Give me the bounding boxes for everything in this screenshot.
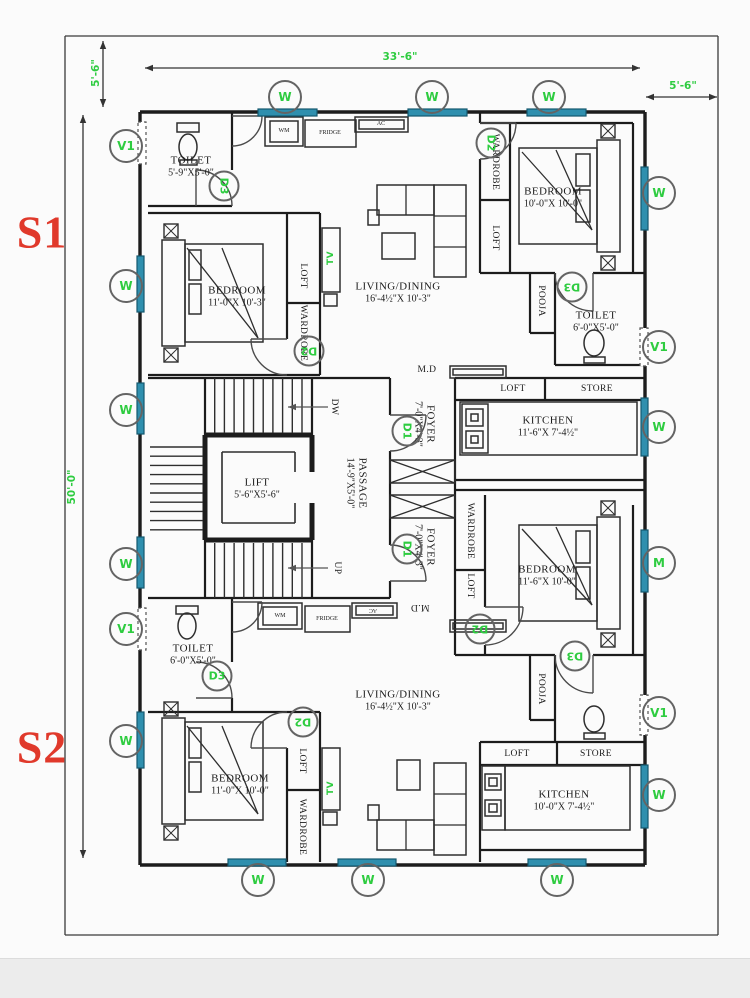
door-marker-d2: D2 <box>465 614 496 645</box>
marker-text: W <box>119 403 132 417</box>
marker-text: W <box>251 873 264 887</box>
label-pooja: POOJA <box>536 673 546 705</box>
marker-text: W <box>119 279 132 293</box>
marker-text: D3 <box>567 650 584 663</box>
room-label-toilet: TOILET5'-9"X5'-0" <box>168 154 214 179</box>
window-marker-w: W <box>540 863 574 897</box>
label-m-d: M.D <box>411 602 430 612</box>
door-marker-d2: D2 <box>476 128 507 159</box>
window-marker-v1: V1 <box>109 612 143 646</box>
window-marker-v1: V1 <box>642 330 676 364</box>
door-marker-d3: D3 <box>202 661 233 692</box>
label-dw: DW <box>329 399 339 416</box>
label-loft: LOFT <box>500 384 525 394</box>
footer-strip <box>0 958 750 998</box>
door-marker-d1: D1 <box>392 416 423 447</box>
label-fridge: FRIDGE <box>319 130 341 136</box>
door-marker-d3: D3 <box>209 171 240 202</box>
dimension-top-right: 5'-6" <box>669 80 697 92</box>
unit-label-s1: S1 <box>17 206 68 259</box>
label-wardrobe: WARDROBE <box>297 799 307 856</box>
window-marker-w: W <box>109 269 143 303</box>
window-marker-w: W <box>351 863 385 897</box>
room-label-kitchen: KITCHEN10'-0"X 7'-4½" <box>534 788 595 813</box>
room-label-bedroom: BEDROOM10'-0"X 10'-0" <box>524 185 582 210</box>
marker-text: D2 <box>484 135 497 152</box>
window-marker-m: M <box>642 546 676 580</box>
window-marker-w: W <box>241 863 275 897</box>
label-ac: AC <box>369 607 377 613</box>
label-pooja: POOJA <box>536 285 546 317</box>
label-store: STORE <box>581 384 613 394</box>
window-marker-w: W <box>642 778 676 812</box>
room-label-lift: LIFT5'-6"X5'-6" <box>234 476 280 501</box>
marker-text: W <box>119 734 132 748</box>
marker-text: V1 <box>650 340 668 354</box>
room-label-kitchen: KITCHEN11'-6"X 7'-4½" <box>518 414 578 439</box>
door-marker-d3: D3 <box>560 641 591 672</box>
marker-text: W <box>542 90 555 104</box>
label-ac: AC <box>377 121 385 127</box>
marker-text: D1 <box>400 423 413 440</box>
marker-text: D3 <box>209 670 226 683</box>
window-marker-w: W <box>109 724 143 758</box>
marker-text: W <box>119 557 132 571</box>
window-marker-w: W <box>642 410 676 444</box>
door-marker-d3: D3 <box>557 272 588 303</box>
dimension-top: 33'-6" <box>383 51 418 63</box>
room-label-toilet: TOILET6'-0"X5'-0" <box>573 309 619 334</box>
marker-text: D2 <box>472 623 489 636</box>
window-marker-w: W <box>532 80 566 114</box>
label-store: STORE <box>580 749 612 759</box>
marker-text: W <box>652 420 665 434</box>
window-marker-w: W <box>642 176 676 210</box>
unit-label-s2: S2 <box>17 721 68 774</box>
marker-text: W <box>361 873 374 887</box>
floor-plan-sheet: S1 S2 33'-6" 5'-6" 5'-6" 50'-0" TOILET5'… <box>0 0 750 998</box>
marker-text: V1 <box>117 622 135 636</box>
window-marker-w: W <box>268 80 302 114</box>
label-loft: LOFT <box>490 225 500 250</box>
marker-text: D3 <box>564 281 581 294</box>
dimension-left: 50'-0" <box>66 470 78 505</box>
room-label-living-dining: LIVING/DINING16'-4½"X 10'-3" <box>355 280 440 305</box>
room-label-bedroom: BEDROOM11'-0"X 10'-0" <box>211 772 269 797</box>
marker-text: D2 <box>295 716 312 729</box>
label-wm: WM <box>275 613 286 619</box>
window-marker-w: W <box>109 547 143 581</box>
label-wm: WM <box>279 128 290 134</box>
marker-text: W <box>652 186 665 200</box>
marker-text: D2 <box>301 345 318 358</box>
window-marker-w: W <box>415 80 449 114</box>
dimension-top-left: 5'-6" <box>90 59 102 87</box>
marker-text: D1 <box>400 541 413 558</box>
door-marker-d1: D1 <box>392 534 423 565</box>
label-loft: LOFT <box>298 263 308 288</box>
label-loft: LOFT <box>297 748 307 773</box>
room-label-bedroom: BEDROOM11'-0"X 10'-3" <box>208 284 266 309</box>
marker-text: W <box>652 788 665 802</box>
marker-text: D3 <box>217 178 230 195</box>
window-marker-v1: V1 <box>642 696 676 730</box>
window-marker-w: W <box>109 393 143 427</box>
marker-text: V1 <box>650 706 668 720</box>
label-loft: LOFT <box>465 573 475 598</box>
label-m-d: M.D <box>418 365 437 375</box>
label-tv: TV <box>326 251 336 265</box>
label-tv: TV <box>326 781 336 795</box>
marker-text: W <box>550 873 563 887</box>
window-marker-v1: V1 <box>109 129 143 163</box>
marker-text: W <box>278 90 291 104</box>
marker-text: W <box>425 90 438 104</box>
label-fridge: FRIDGE <box>316 616 338 622</box>
marker-text: M <box>653 556 665 570</box>
label-up: UP <box>332 562 342 575</box>
room-label-living-dining: LIVING/DINING16'-4½"X 10'-3" <box>355 688 440 713</box>
room-label-bedroom: BEDROOM11'-6"X 10'-0" <box>518 563 576 588</box>
label-wardrobe: WARDROBE <box>465 503 475 560</box>
room-label-passage: PASSAGE14'-9"X5'-0" <box>343 458 368 509</box>
door-marker-d2: D2 <box>288 707 319 738</box>
marker-text: V1 <box>117 139 135 153</box>
label-loft: LOFT <box>504 749 529 759</box>
door-marker-d2: D2 <box>294 336 325 367</box>
